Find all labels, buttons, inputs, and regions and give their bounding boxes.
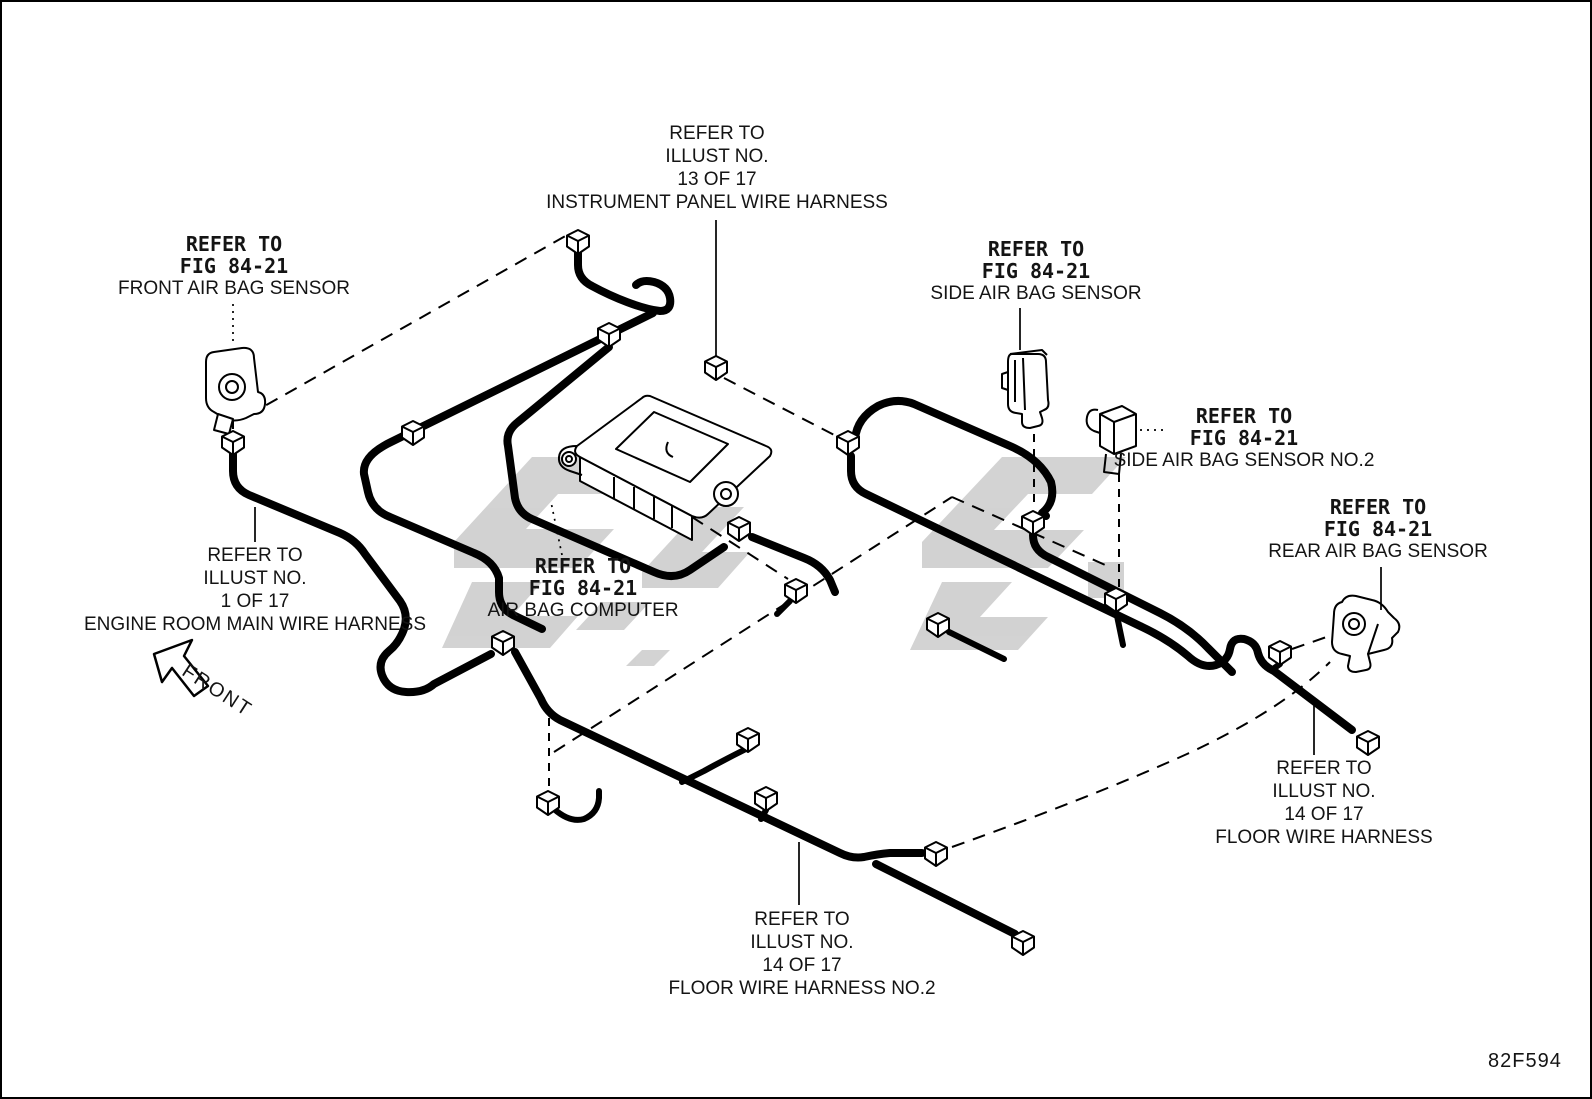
- callout-rear-air-bag-sensor: REFER TO FIG 84-21 REAR AIR BAG SENSOR: [1268, 496, 1488, 563]
- callout-line: FRONT AIR BAG SENSOR: [118, 277, 350, 300]
- callout-floor-harness-no2: REFER TO ILLUST NO. 14 OF 17 FLOOR WIRE …: [668, 908, 935, 1000]
- callout-line: FIG 84-21: [118, 255, 350, 277]
- dashed-connection-lines: [247, 234, 1338, 847]
- connector-icon: [1012, 931, 1034, 955]
- connector-icon: [837, 431, 859, 455]
- floor-no2-harness-wire: [515, 652, 922, 858]
- callout-line: REFER TO: [1215, 757, 1432, 780]
- callout-side-air-bag-sensor: REFER TO FIG 84-21 SIDE AIR BAG SENSOR: [930, 238, 1141, 305]
- callout-line: FIG 84-21: [930, 260, 1141, 282]
- callout-line: REFER TO: [487, 555, 678, 577]
- callout-line: REFER TO: [1268, 496, 1488, 518]
- connector-icon: [567, 230, 589, 254]
- callout-line: REFER TO: [930, 238, 1141, 260]
- callout-line: FIG 84-21: [1114, 427, 1375, 449]
- callout-side-air-bag-sensor-no2: REFER TO FIG 84-21 SIDE AIR BAG SENSOR N…: [1114, 405, 1375, 472]
- floor-harness-wire: [1033, 535, 1232, 672]
- callout-line: 1 OF 17: [84, 590, 426, 613]
- connector-icon: [737, 728, 759, 752]
- rear-air-bag-sensor-icon: [1332, 596, 1399, 672]
- callout-instrument-panel-harness: REFER TO ILLUST NO. 13 OF 17 INSTRUMENT …: [546, 122, 888, 214]
- callout-line: ILLUST NO.: [546, 145, 888, 168]
- callout-line: FLOOR WIRE HARNESS NO.2: [668, 977, 935, 1000]
- callout-line: REFER TO: [546, 122, 888, 145]
- dashed-connection-line: [724, 378, 840, 438]
- callout-line: INSTRUMENT PANEL WIRE HARNESS: [546, 191, 888, 214]
- callout-line: 14 OF 17: [668, 954, 935, 977]
- callout-line: 14 OF 17: [1215, 803, 1432, 826]
- connector-icon: [222, 431, 244, 455]
- callout-line: AIR BAG COMPUTER: [487, 599, 678, 622]
- connector-icon: [925, 842, 947, 866]
- callout-line: ILLUST NO.: [668, 931, 935, 954]
- side-air-bag-sensor-icon: [1002, 350, 1049, 428]
- callout-line: ENGINE ROOM MAIN WIRE HARNESS: [84, 613, 426, 636]
- callout-front-air-bag-sensor: REFER TO FIG 84-21 FRONT AIR BAG SENSOR: [118, 233, 350, 300]
- callout-line: REFER TO: [668, 908, 935, 931]
- callout-floor-harness: REFER TO ILLUST NO. 14 OF 17 FLOOR WIRE …: [1215, 757, 1432, 849]
- connector-icon: [1357, 731, 1379, 755]
- callout-line: SIDE AIR BAG SENSOR NO.2: [1114, 449, 1375, 472]
- callout-line: ILLUST NO.: [1215, 780, 1432, 803]
- connector-icon: [705, 356, 727, 380]
- callout-line: ILLUST NO.: [84, 567, 426, 590]
- callout-line: REFER TO: [1114, 405, 1375, 427]
- front-air-bag-sensor-icon: [206, 348, 265, 434]
- callout-engine-room-harness: REFER TO ILLUST NO. 1 OF 17 ENGINE ROOM …: [84, 544, 426, 636]
- connector-pigtail: [554, 791, 599, 820]
- connector-icon: [402, 421, 424, 445]
- connector-icon: [755, 787, 777, 811]
- callout-line: FIG 84-21: [1268, 518, 1488, 540]
- callout-line: REFER TO: [118, 233, 350, 255]
- connector-icon: [492, 631, 514, 655]
- connector-stub: [682, 750, 744, 782]
- callout-line: FLOOR WIRE HARNESS: [1215, 826, 1432, 849]
- callout-air-bag-computer: REFER TO FIG 84-21 AIR BAG COMPUTER: [487, 555, 678, 622]
- callout-line: REFER TO: [84, 544, 426, 567]
- parts-diagram-page: REFER TO ILLUST NO. 13 OF 17 INSTRUMENT …: [0, 0, 1592, 1099]
- connector-icon: [728, 517, 750, 541]
- callout-line: FIG 84-21: [487, 577, 678, 599]
- connector-icon: [1269, 641, 1291, 665]
- callout-line: 13 OF 17: [546, 168, 888, 191]
- figure-code: 82F594: [1488, 1050, 1562, 1073]
- callout-line: SIDE AIR BAG SENSOR: [930, 282, 1141, 305]
- connector-icon: [598, 323, 620, 347]
- instrument-panel-harness-wire: [578, 253, 670, 311]
- callout-line: REAR AIR BAG SENSOR: [1268, 540, 1488, 563]
